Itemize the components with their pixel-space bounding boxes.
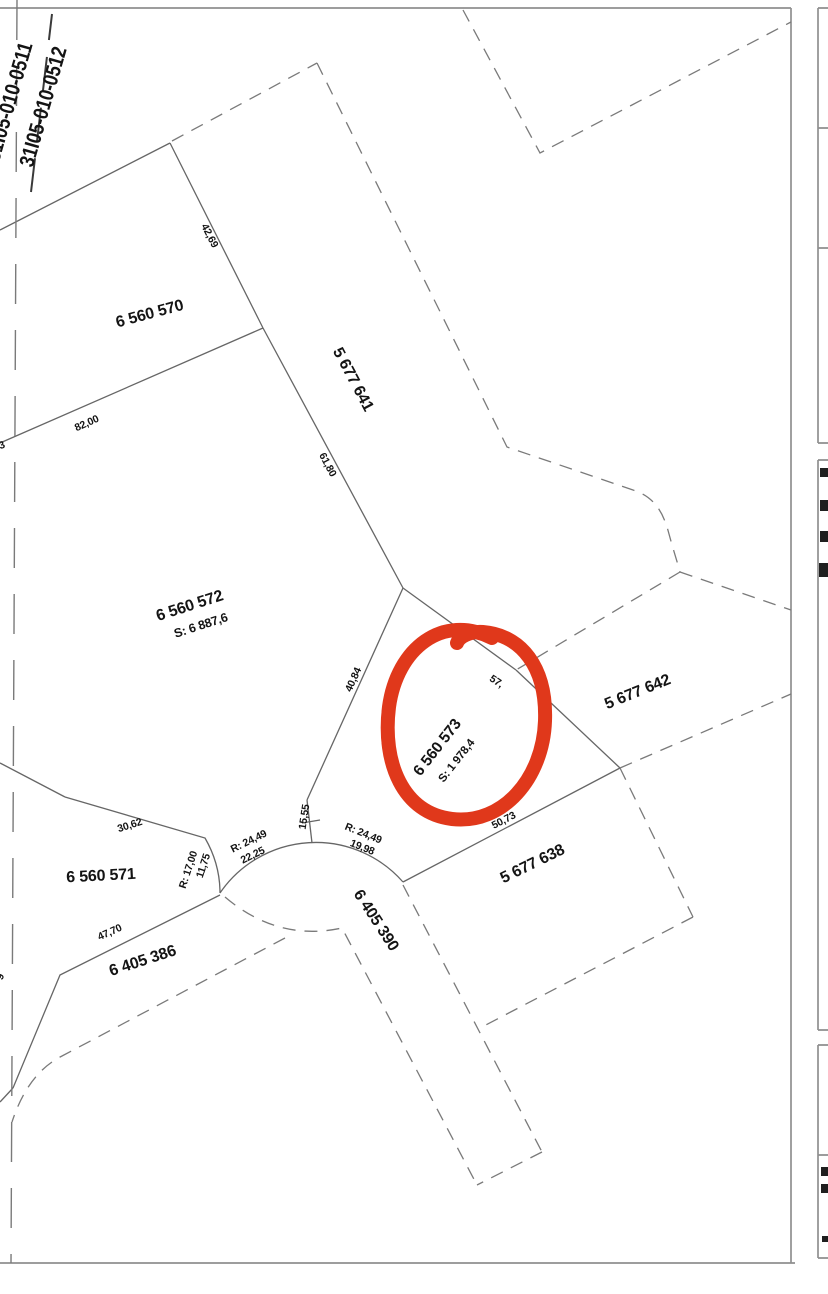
dashed-boundaries [12,10,791,1185]
cutoff-text-fragment [822,1236,828,1242]
info-panel-border [818,8,828,1258]
cutoff-text-fragment [821,1184,828,1193]
cutoff-text-fragment [821,1167,828,1176]
map-linework [0,0,828,1294]
cadastral-map: 31I05-010-051131I05-010-05126 560 5705 6… [0,0,828,1294]
cutoff-text-fragment [820,531,828,542]
cutoff-text-fragment [819,563,828,577]
highlight-circle [388,630,545,820]
map-border [0,8,795,1263]
parcel-boundaries [0,143,620,1102]
cutoff-text-fragment [820,468,828,477]
cutoff-text-fragment [820,500,828,511]
left-road-dashed-line [11,0,17,1263]
